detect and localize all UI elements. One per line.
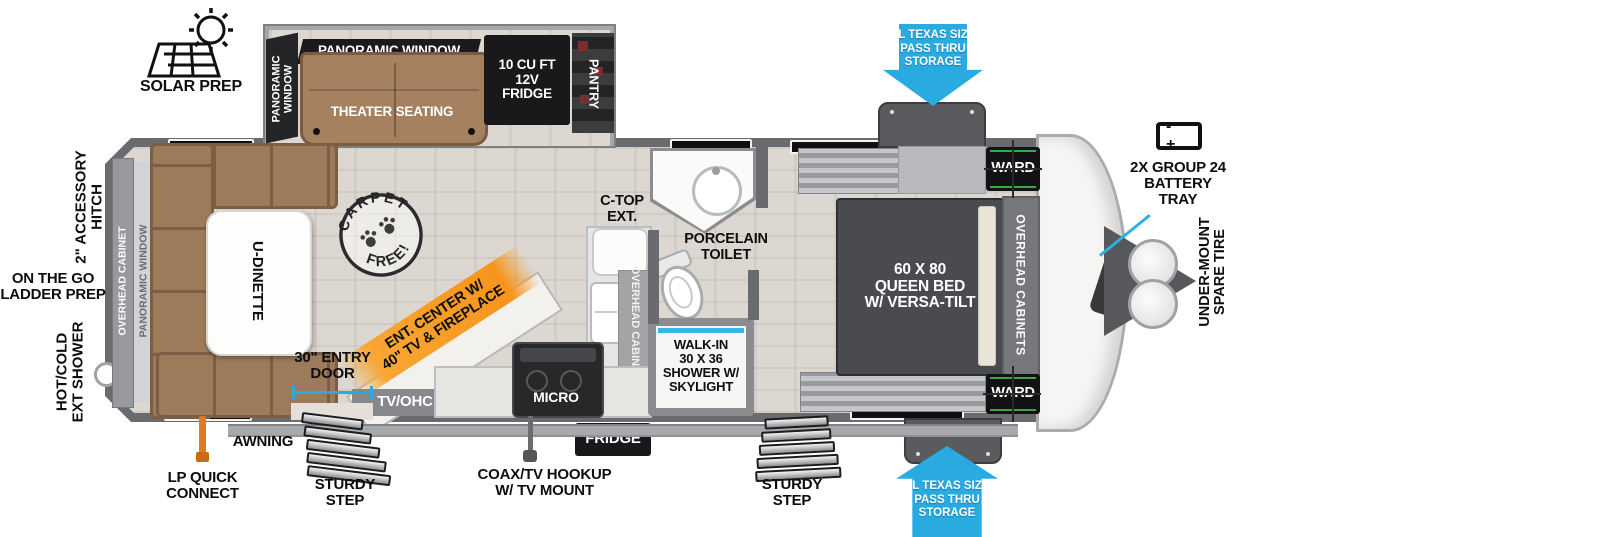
pass-thru-interior bbox=[898, 146, 986, 194]
entry-door-measure-line bbox=[293, 391, 373, 394]
pass-thru-bottom-label: XL TEXAS SIZE PASS THRU STORAGE bbox=[896, 480, 998, 521]
solar-prep-icon bbox=[145, 4, 250, 80]
fridge-12v: 10 CU FT 12V FRIDGE bbox=[484, 35, 570, 125]
battery-icon: - + bbox=[1156, 122, 1202, 150]
pass-thru-arrow-top: XL TEXAS SIZE PASS THRU STORAGE bbox=[883, 24, 983, 106]
awning-label: AWNING bbox=[222, 434, 304, 450]
bath-sink bbox=[692, 166, 742, 216]
cupholder-icon bbox=[468, 128, 475, 135]
entry-door-label: 30" ENTRY DOOR bbox=[285, 350, 380, 382]
solar-prep-label: SOLAR PREP bbox=[132, 78, 250, 95]
sturdy-step-bed-label: STURDY STEP bbox=[752, 477, 832, 509]
coax-hookup-label: COAX/TV HOOKUP W/ TV MOUNT bbox=[462, 467, 627, 499]
bath-wall bbox=[648, 230, 659, 324]
pass-thru-top-label: XL TEXAS SIZE PASS THRU STORAGE bbox=[883, 29, 983, 70]
stove-micro bbox=[512, 342, 604, 418]
cupholder-icon bbox=[313, 128, 320, 135]
c-top-ext-label: C-TOP EXT. bbox=[584, 194, 660, 225]
micro-label: MICRO bbox=[512, 390, 600, 405]
tv-ohc-label: TV/OHC bbox=[377, 394, 432, 410]
bed-headboard bbox=[978, 206, 996, 366]
bedroom-steps bbox=[750, 415, 841, 485]
pass-thru-door-top bbox=[878, 102, 986, 148]
theater-seating-label: THEATER SEATING bbox=[312, 105, 472, 120]
sturdy-step-door-label: STURDY STEP bbox=[305, 477, 385, 509]
battery-tray-label: 2X GROUP 24 BATTERY TRAY bbox=[1118, 160, 1238, 209]
measure-tick bbox=[370, 386, 373, 399]
queen-bed-label: 60 X 80 QUEEN BED W/ VERSA-TILT bbox=[865, 262, 976, 312]
fridge-12v-label: 10 CU FT 12V FRIDGE bbox=[499, 58, 556, 102]
coax-plug-icon bbox=[523, 450, 537, 462]
lp-quick-connect-nozzle bbox=[196, 452, 209, 462]
rv-floorplan: - + 2X GROUP 24 BATTERY TRAY UNDER-MOUNT… bbox=[0, 0, 1600, 537]
ladder-prep-label: ON THE GO LADDER PREP bbox=[0, 271, 106, 303]
fan-symbol-icon bbox=[983, 393, 1041, 395]
skylight-strip bbox=[658, 328, 744, 333]
theater-seating-sofa bbox=[300, 52, 488, 146]
shower-label: WALK-IN 30 X 36 SHOWER W/ SKYLIGHT bbox=[656, 338, 746, 394]
shower: WALK-IN 30 X 36 SHOWER W/ SKYLIGHT bbox=[648, 318, 754, 416]
bed-nightstand-top bbox=[798, 148, 900, 194]
battery-terminals-label: - + bbox=[1166, 118, 1198, 154]
bath-wall bbox=[748, 270, 759, 320]
fan-symbol-icon bbox=[984, 168, 1042, 170]
lp-quick-connect-label: LP QUICK CONNECT bbox=[155, 470, 250, 502]
measure-tick bbox=[292, 386, 295, 399]
bed-nightstand-bottom bbox=[800, 372, 986, 412]
bath-wall bbox=[756, 138, 768, 208]
propane-tank bbox=[1128, 279, 1178, 329]
